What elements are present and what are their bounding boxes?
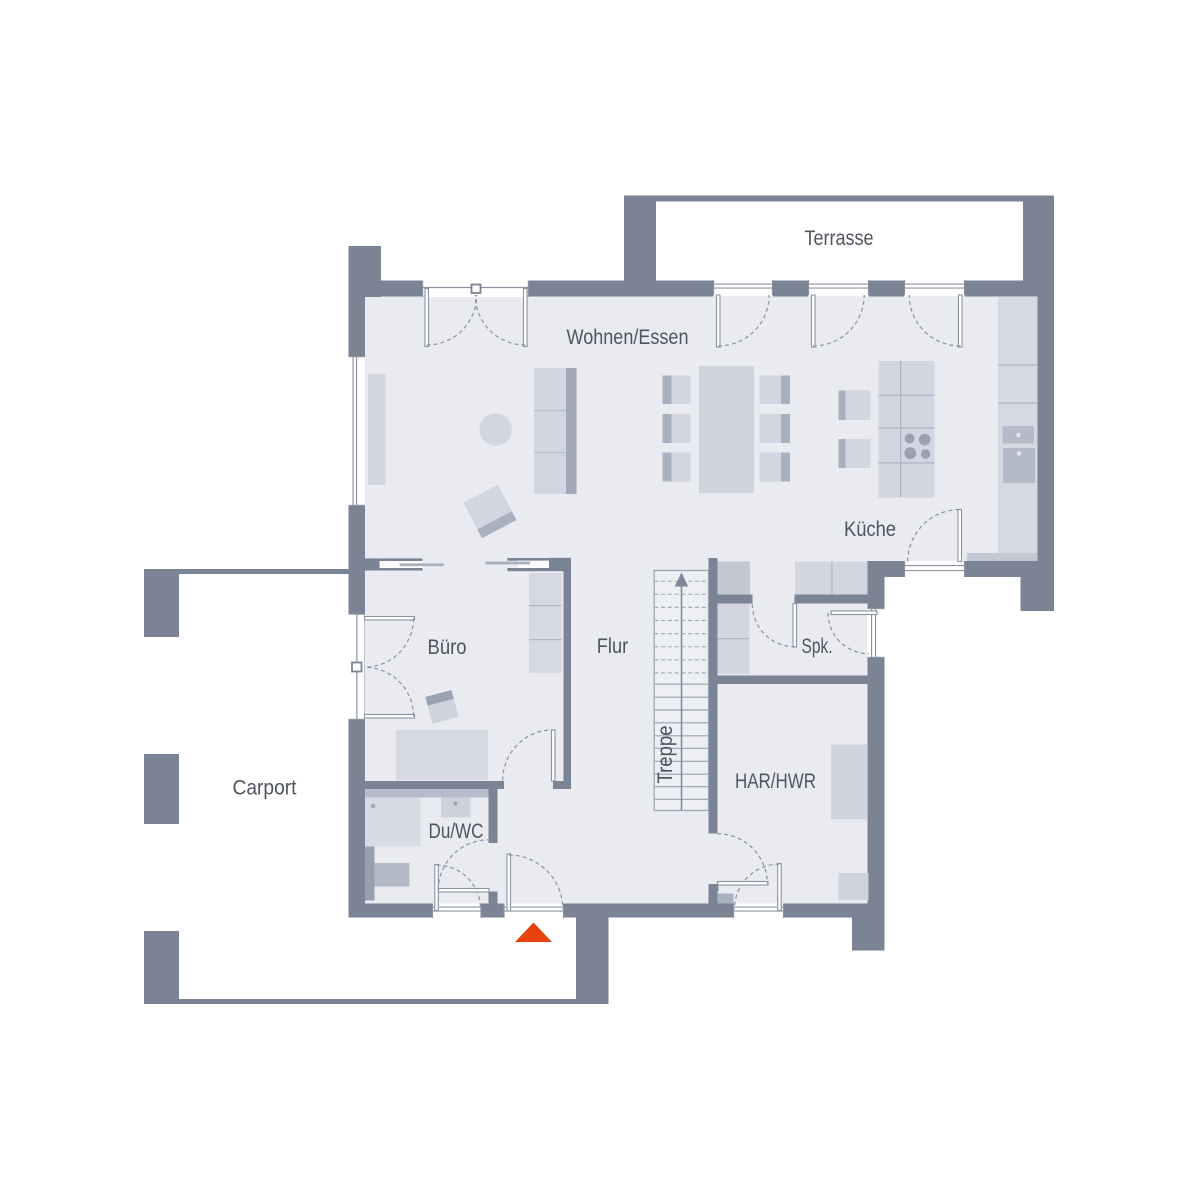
svg-text:HAR/HWR: HAR/HWR bbox=[735, 769, 816, 793]
svg-text:Küche: Küche bbox=[844, 517, 896, 541]
svg-text:Terrasse: Terrasse bbox=[805, 226, 874, 250]
svg-text:Du/WC: Du/WC bbox=[429, 819, 484, 843]
svg-text:Treppe: Treppe bbox=[653, 726, 677, 784]
svg-text:Spk.: Spk. bbox=[802, 634, 833, 658]
svg-text:Wohnen/Essen: Wohnen/Essen bbox=[567, 325, 689, 349]
svg-text:Flur: Flur bbox=[597, 634, 629, 658]
svg-text:Carport: Carport bbox=[233, 776, 297, 800]
svg-text:Büro: Büro bbox=[428, 635, 467, 659]
